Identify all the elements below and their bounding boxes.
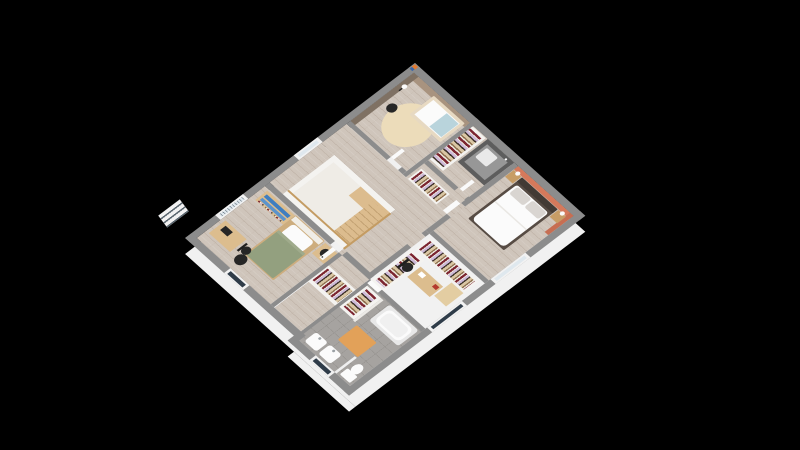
floorplan — [179, 63, 586, 396]
exterior-window-shutter — [158, 199, 189, 227]
floorplan-render — [0, 0, 800, 450]
